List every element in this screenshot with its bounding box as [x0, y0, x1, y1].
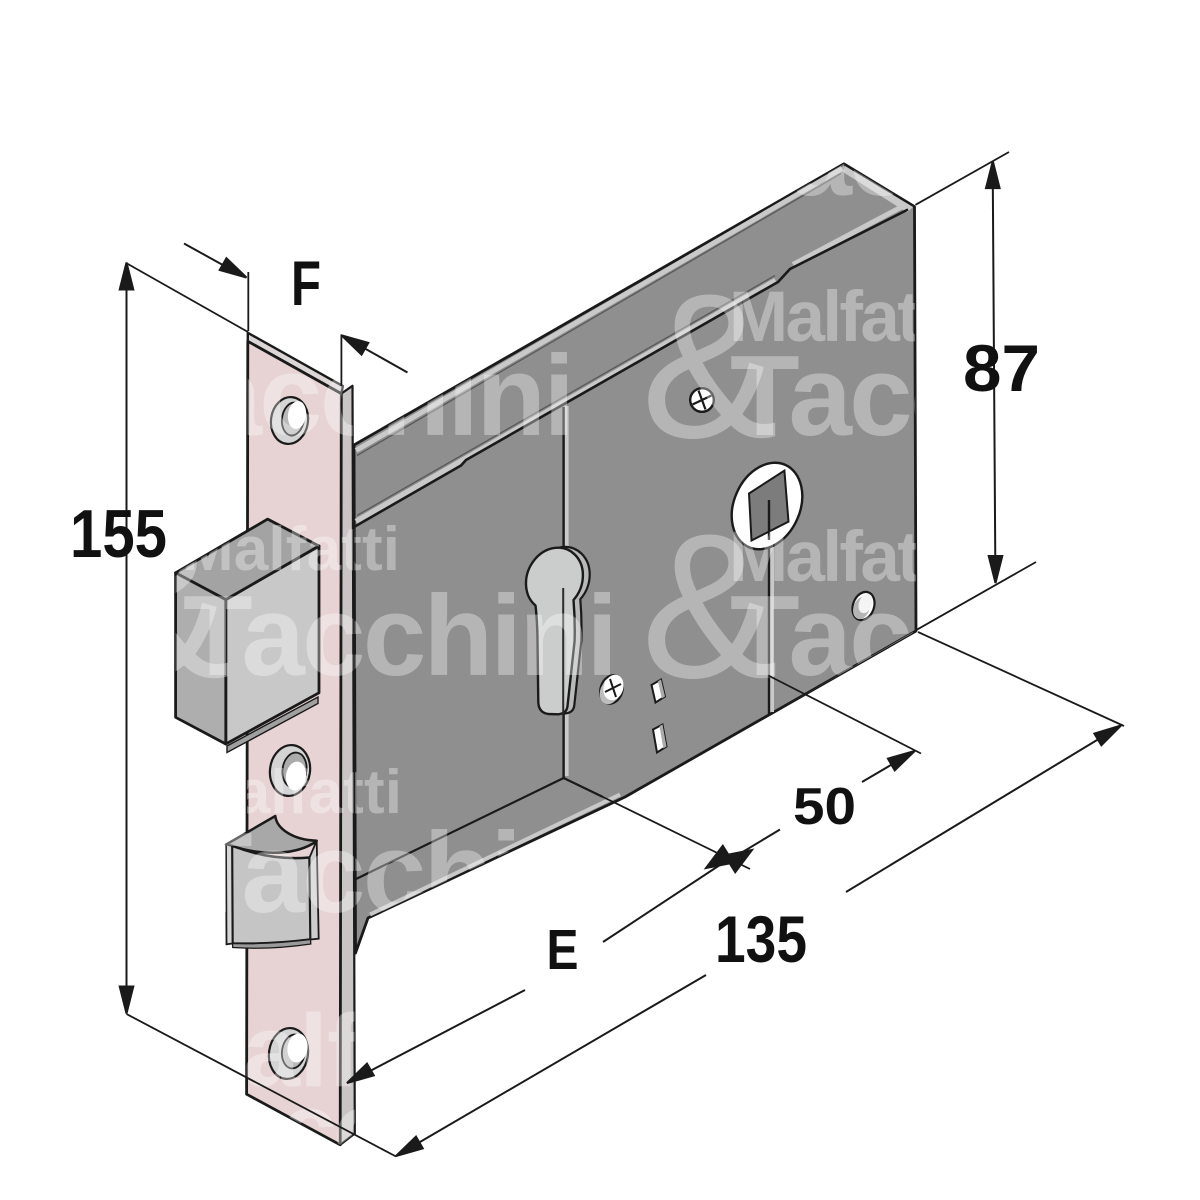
svg-text:87: 87	[963, 331, 1040, 405]
svg-text:155: 155	[70, 496, 167, 572]
svg-text:Tacchini: Tacchini	[183, 573, 618, 700]
svg-text:50: 50	[793, 778, 856, 836]
svg-text:E: E	[547, 918, 579, 982]
svg-text:F: F	[291, 249, 321, 319]
svg-text:135: 135	[715, 902, 807, 976]
